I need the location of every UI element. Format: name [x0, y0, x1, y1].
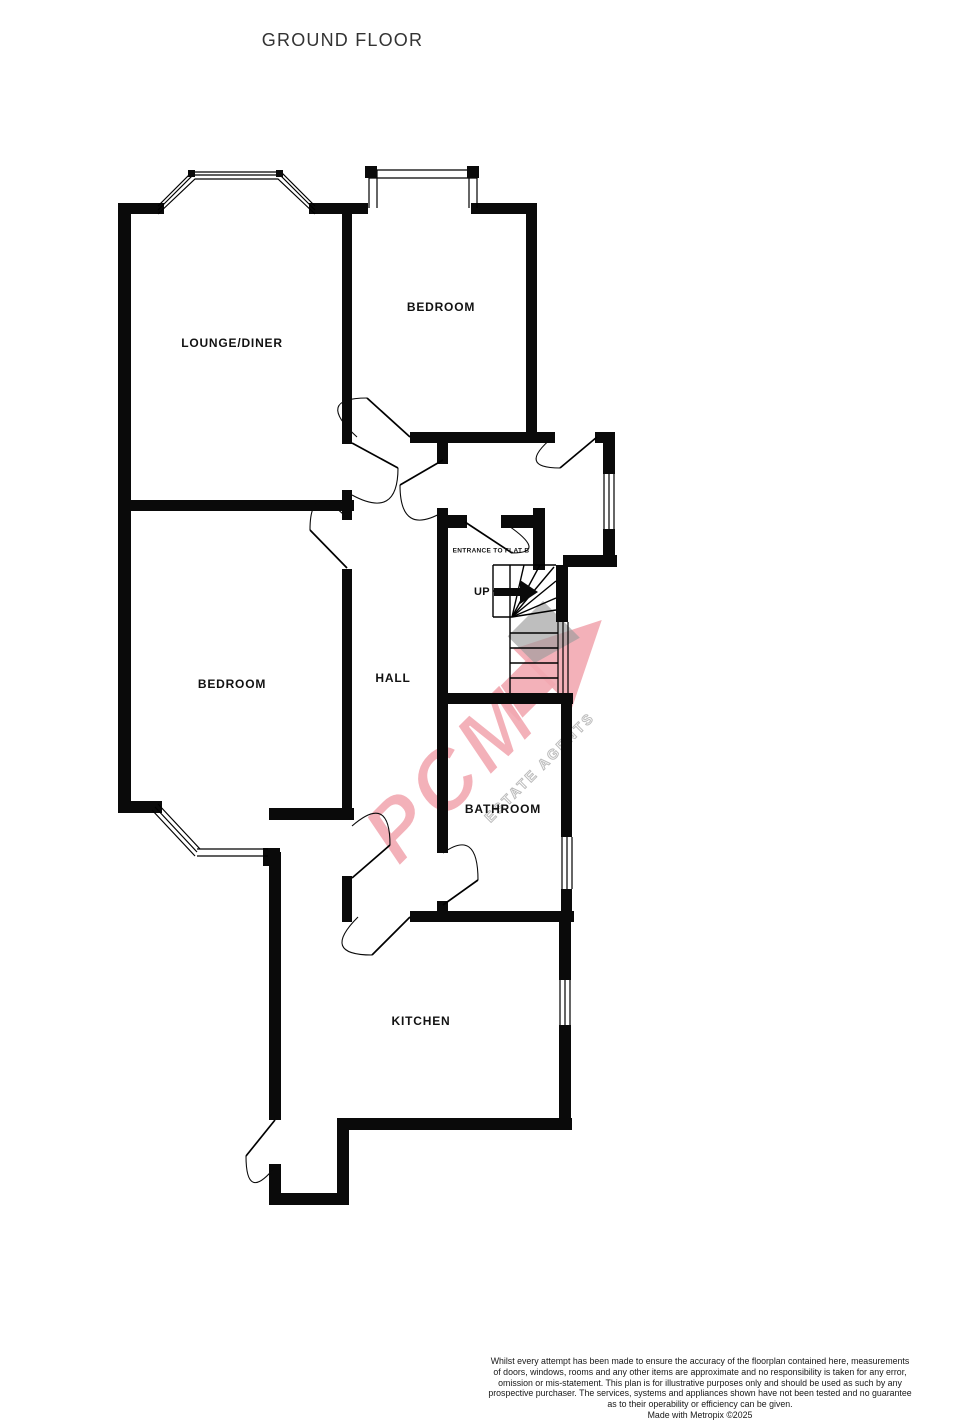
window-corner	[188, 170, 195, 177]
wall-segment	[118, 203, 164, 214]
disclaimer-text: Whilst every attempt has been made to en…	[440, 1356, 960, 1421]
disclaimer-made-with: Made with Metropix ©2025	[440, 1410, 960, 1421]
wall-segment	[559, 1025, 571, 1130]
floorplan-page: GROUND FLOOR PCM ESTATE AGENTS	[0, 0, 980, 1428]
wall-segment	[437, 515, 467, 528]
disclaimer-line: prospective purchaser. The services, sys…	[440, 1388, 960, 1399]
floorplan-svg: PCM ESTATE AGENTS	[0, 0, 980, 1428]
wall-segment	[342, 490, 352, 520]
door-leaf	[246, 1120, 275, 1156]
wall-segment	[437, 693, 573, 704]
window-line	[155, 807, 197, 852]
door-leaf	[310, 530, 347, 568]
room-label-bedroom-left: BEDROOM	[198, 677, 266, 691]
wall-segment	[410, 432, 555, 443]
wall-segment	[410, 911, 574, 922]
room-label-hall: HALL	[375, 671, 410, 685]
wall-segment	[309, 203, 368, 214]
wall-segment	[526, 203, 537, 443]
wall-segment	[561, 695, 572, 837]
wall-segment	[559, 922, 571, 980]
disclaimer-line: as to their operability or efficiency ca…	[440, 1399, 960, 1410]
window-line	[158, 179, 315, 214]
wall-segment	[556, 565, 568, 622]
wall-segment	[269, 808, 354, 820]
door-leaf	[400, 460, 443, 485]
room-label-kitchen: KITCHEN	[392, 1014, 451, 1028]
room-label-bedroom-top: BEDROOM	[407, 300, 475, 314]
bay-window-bedroom-left	[152, 804, 268, 856]
window-line	[152, 810, 195, 856]
wall-segment	[603, 529, 615, 567]
wall-segment	[342, 203, 352, 444]
door-arc	[342, 917, 372, 955]
door-leaf	[367, 398, 410, 437]
window-corner	[365, 166, 377, 178]
window-kitchen-right	[560, 980, 570, 1025]
door-arc	[443, 845, 478, 880]
disclaimer-line: omission or mis-statement. This plan is …	[440, 1378, 960, 1389]
up-arrow-head	[520, 580, 538, 604]
wall-segment	[337, 1118, 572, 1130]
door-arc	[400, 485, 443, 520]
door-leaf	[352, 443, 398, 468]
wall-segment	[437, 528, 448, 853]
wall-segment	[342, 876, 352, 922]
wall-segment	[437, 901, 448, 922]
wall-segment	[533, 508, 545, 570]
wall-segment	[269, 852, 281, 1120]
door-leaf	[372, 917, 410, 955]
bay-window-lounge	[158, 170, 315, 214]
stairs-up-label: UP	[474, 586, 490, 598]
wall-segment	[603, 432, 615, 474]
wall-segment	[342, 569, 352, 809]
wall-segment	[561, 889, 572, 922]
room-label-bathroom: BATHROOM	[465, 802, 541, 816]
window-bathroom-right	[562, 837, 572, 889]
wall-segment	[337, 1126, 349, 1205]
door-leaf	[443, 880, 478, 905]
up-arrow-shaft	[494, 588, 521, 596]
window-entrance-right	[604, 474, 614, 529]
door-leaf	[352, 845, 390, 878]
bay-window-bedroom-top	[365, 166, 479, 208]
window-line	[158, 804, 200, 849]
room-label-lounge-diner: LOUNGE/DINER	[181, 336, 283, 350]
watermark-logo: PCM ESTATE AGENTS	[338, 581, 650, 893]
window-line	[158, 172, 315, 206]
wall-segment	[501, 515, 535, 528]
walls-group	[118, 203, 617, 1205]
door-arc	[352, 468, 398, 503]
door-leaf	[560, 437, 597, 468]
window-corner	[467, 166, 479, 178]
window-corner	[276, 170, 283, 177]
entrance-to-flat-b-label: ENTRANCE TO FLAT B	[453, 548, 530, 555]
disclaimer-line: of doors, windows, rooms and any other i…	[440, 1367, 960, 1378]
disclaimer-line: Whilst every attempt has been made to en…	[440, 1356, 960, 1367]
